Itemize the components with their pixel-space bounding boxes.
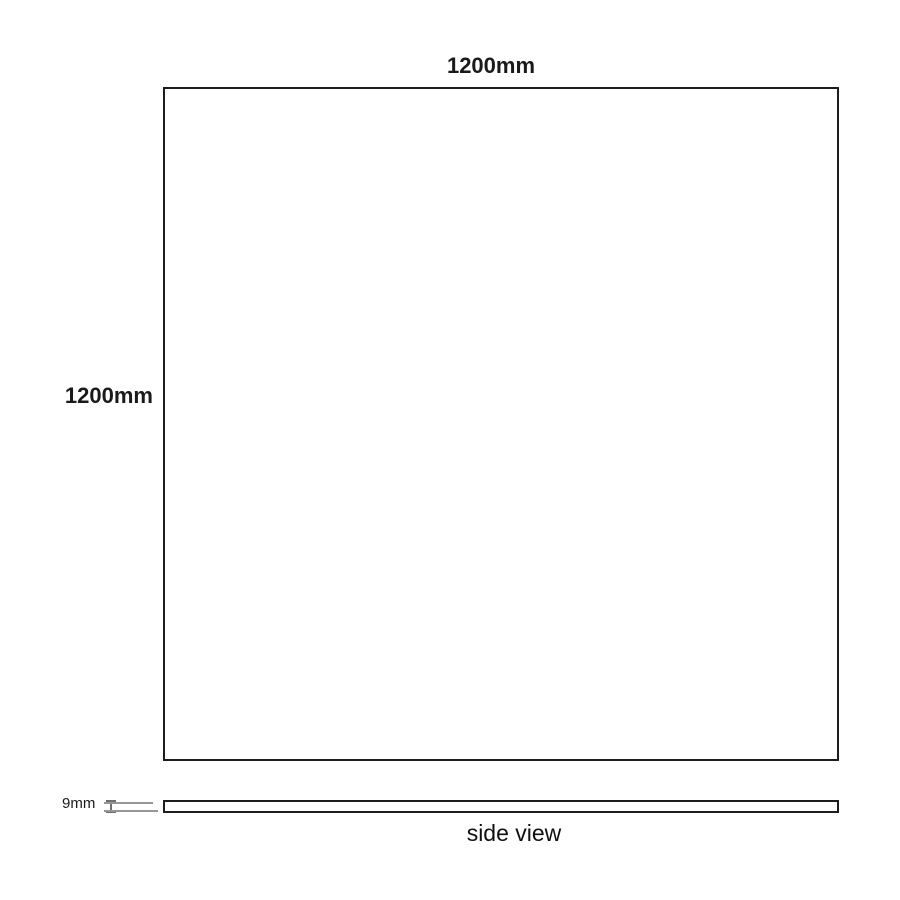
thickness-dimension-label: 9mm: [62, 796, 95, 811]
dimension-diagram: 1200mm 1200mm 9mm side view: [0, 0, 900, 900]
panel-front-view-outline: [163, 87, 839, 761]
thickness-extension-line-top: [104, 802, 153, 804]
thickness-extension-line-bottom: [104, 810, 158, 812]
side-view-caption: side view: [176, 820, 852, 846]
left-height-dimension-label: 1200mm: [38, 385, 153, 407]
top-width-dimension-label: 1200mm: [153, 55, 829, 77]
panel-side-view-outline: [163, 800, 839, 813]
